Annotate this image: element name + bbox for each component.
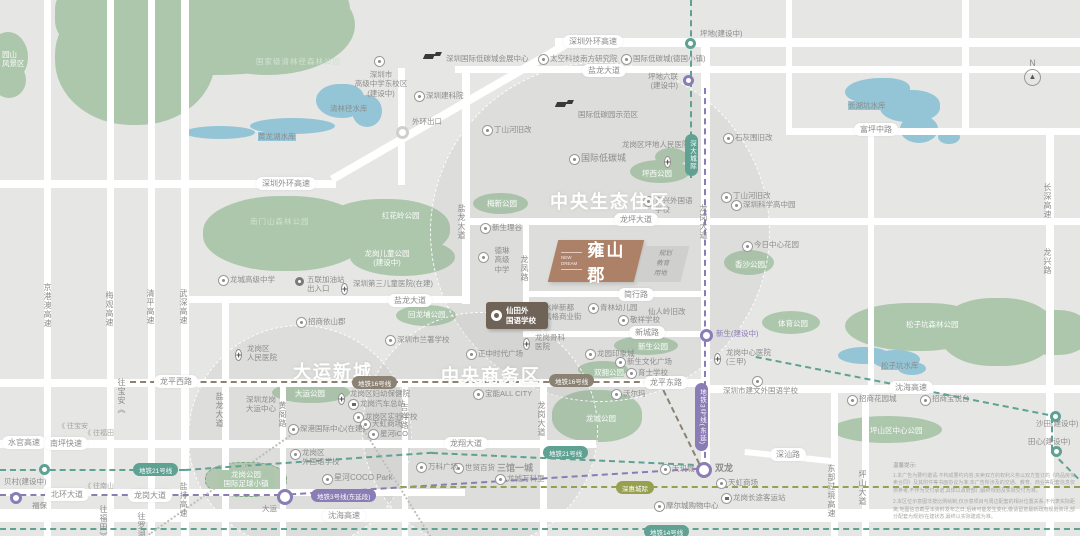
- cross-icon: +: [714, 349, 721, 367]
- map-label: 龙岗儿童公园(建设中): [362, 249, 412, 268]
- map-label: 沃尔玛: [623, 389, 646, 398]
- map-label: 深圳建科院: [426, 91, 464, 100]
- road-label-vertical: 往罗湖》: [136, 512, 147, 536]
- map-label: 龙城高级中学: [230, 275, 275, 284]
- road-label-vertical: 往福田》: [98, 505, 109, 536]
- metro-line-badge: 地铁16号线: [549, 374, 594, 387]
- map-label: 大运公园: [295, 389, 325, 398]
- ring-icon: [538, 54, 549, 65]
- map-label: 天虹商场: [728, 478, 758, 487]
- map-label: 香沙公园: [735, 260, 765, 269]
- map-label: 深圳第三儿童医院(在建): [353, 279, 433, 288]
- cross-icon: +: [235, 345, 242, 363]
- metro-line-badge: 地铁16号线: [352, 376, 397, 389]
- road: [786, 128, 1080, 135]
- ring-icon: [374, 56, 385, 67]
- map-label: 天玑城: [672, 464, 695, 473]
- map-label: 体育公园: [778, 319, 808, 328]
- map-label: 国际低碳城: [581, 153, 626, 164]
- ring-icon: [660, 464, 671, 475]
- map-label: 万科广场: [428, 462, 458, 471]
- map-label: 天虹商场: [372, 419, 402, 428]
- map-label: 德琳高级中学: [491, 246, 513, 274]
- map-label: 星河iCO: [380, 429, 408, 438]
- map-label: 龙岗公园国际足球小镇: [218, 470, 274, 489]
- road-label: 盐龙大道: [388, 294, 432, 307]
- road-label: 龙翔大道: [444, 437, 488, 450]
- road-label-vertical: 东部过境高速: [826, 464, 837, 518]
- disclaimer-title: 温馨提示:: [893, 462, 1075, 471]
- map-label: 龙城公园: [586, 414, 616, 423]
- map-label: 宝能ALL CITY: [485, 389, 532, 398]
- compass-arrow-icon: ▲: [1024, 69, 1041, 86]
- ring-icon: [322, 474, 333, 485]
- map-label: 新生文化广场: [627, 357, 672, 366]
- road-label-vertical: 坪山大道: [857, 470, 868, 506]
- ring-icon: [626, 368, 637, 379]
- ring-icon: [615, 357, 626, 368]
- map-label: 黄龙湖水库: [258, 132, 296, 141]
- map-label: 松子坑森林公园: [906, 320, 959, 329]
- road-label-vertical: 黄阁路: [277, 401, 288, 428]
- road-label: 龙平东路: [644, 376, 688, 389]
- compass-letter: N: [1024, 58, 1041, 68]
- map-label: 深圳科学高中园: [743, 200, 796, 209]
- ring-icon: [618, 315, 629, 326]
- road-label-vertical: 梅观高速: [104, 291, 115, 327]
- road: [148, 0, 155, 536]
- road-label: 沈海高速: [322, 509, 366, 522]
- road: [0, 440, 596, 448]
- bus-icon: [348, 399, 359, 410]
- road: [555, 38, 1080, 47]
- water-shape: [185, 126, 255, 139]
- map-label: 长湖坑水库: [848, 101, 886, 110]
- ring-icon: [742, 241, 753, 252]
- ring-icon: [920, 395, 931, 406]
- map-label: 丁山河旧改: [494, 125, 532, 134]
- ring-icon: [482, 125, 493, 136]
- property-marker-yongshanjun: NEW DREAM 雍山郡: [553, 240, 639, 282]
- map-label: 新生公园: [638, 342, 668, 351]
- map-label: 园山风景区: [2, 50, 25, 69]
- gas-icon: [295, 277, 304, 286]
- map-label: 坪地(建设中): [700, 29, 743, 38]
- map-label: 红花岭公园: [382, 211, 420, 220]
- map-label: 今日中心花园: [754, 240, 799, 249]
- road-label-vertical: 龙岗大道: [536, 401, 547, 437]
- map-label: 松子坑水库: [881, 361, 919, 370]
- map-label: 三馆一城: [497, 463, 533, 474]
- planned-land-line: 教育: [655, 259, 670, 269]
- map-label: 南门山森林公园: [250, 217, 310, 226]
- map-label: 外环出口: [412, 117, 442, 126]
- map-label: 《 往南山: [84, 483, 114, 492]
- road-label-vertical: 清平高速: [145, 289, 156, 325]
- map-label: 招商宝悦台: [932, 394, 970, 403]
- road-label: 富坪中路: [854, 123, 898, 136]
- map-label: 深港国际中心(在建): [300, 424, 365, 433]
- school-flag-line: 国语学校: [506, 316, 536, 326]
- ring-icon: [611, 389, 622, 400]
- ring-icon: [296, 317, 307, 328]
- road: [107, 0, 114, 536]
- road: [455, 66, 1080, 73]
- metro-line-badge: 地铁3号线(东延): [695, 383, 708, 451]
- property-name: 雍山郡: [587, 236, 631, 286]
- school-icon: [491, 310, 502, 321]
- ring-icon: [723, 133, 734, 144]
- planned-land-line: 规划: [658, 249, 673, 259]
- metro-line-badge: 地铁21号线: [543, 446, 588, 459]
- map-label: 龙岗区外国语学校: [302, 448, 348, 467]
- map-label: 坪山区中心公园: [870, 426, 923, 435]
- map-label: 深圳市建文外国语学校: [723, 386, 798, 395]
- planned-education-land-block: 规划 教育 用地: [637, 246, 690, 282]
- road: [460, 218, 1080, 225]
- map-label: 大运: [262, 504, 277, 513]
- ring-icon: [621, 54, 632, 65]
- ring-icon: [654, 501, 665, 512]
- metro-station: [696, 462, 712, 478]
- road-label-vertical: 龙兴路: [1042, 248, 1053, 275]
- metro-station: [396, 126, 409, 139]
- ring-icon: [480, 223, 491, 234]
- map-label: 深圳国际低碳城会展中心: [446, 54, 529, 63]
- ring-icon: [585, 349, 596, 360]
- road-label-vertical: 长深高速: [1042, 183, 1053, 219]
- district-label: 中央生态住区: [550, 188, 670, 214]
- metro-station: [10, 492, 22, 504]
- ring-icon: [478, 252, 489, 263]
- map-label: 太空科技南方研究院: [550, 54, 618, 63]
- bus-icon: [721, 493, 732, 504]
- map-label: 国际低碳城(德国小镇): [633, 54, 706, 63]
- district-label: 中央商务区: [441, 362, 541, 388]
- school-flag-line: 仙田外: [506, 306, 536, 316]
- ring-icon: [290, 449, 301, 460]
- map-label: 龙岗中心医院(三甲): [726, 348, 778, 367]
- ring-icon: [416, 462, 427, 473]
- road-label: 简行路: [618, 288, 654, 301]
- cross-icon: +: [523, 334, 530, 352]
- road-label-vertical: 龙岗大道: [698, 204, 709, 240]
- planned-land-line: 用地: [653, 269, 668, 279]
- road-label-vertical: 盐排高速: [178, 482, 189, 518]
- map-label: 星河COCO Park: [334, 473, 393, 483]
- map-label: 新生(建设中): [716, 329, 759, 338]
- metro-line-badge: 深大城际: [685, 134, 698, 176]
- road-label-vertical: 盐龙大道: [214, 392, 225, 428]
- ring-icon: [569, 154, 580, 165]
- road-label: 新城路: [629, 326, 665, 339]
- road-label-vertical: 往宝安《: [116, 378, 127, 414]
- metro-line-badge: 地铁14号线: [644, 525, 689, 536]
- ring-icon: [473, 389, 484, 400]
- metro-line-badge: 地铁3号线(东延段): [311, 489, 376, 502]
- metro-station: [39, 464, 50, 475]
- map-label: 招商依山郡: [308, 317, 346, 326]
- ring-icon: [495, 474, 506, 485]
- ring-icon: [731, 200, 742, 211]
- map-label: 双龙: [715, 463, 733, 474]
- road-label: 龙岗大道: [128, 489, 172, 502]
- road-label-vertical: 吉祥路: [399, 403, 410, 430]
- road-label: 北环大道: [45, 488, 89, 501]
- ring-icon: [466, 349, 477, 360]
- road-label: 深圳外环高速: [256, 177, 316, 190]
- map-label: 石灰围旧改: [735, 133, 773, 142]
- map-label: 敬祥学校: [630, 315, 660, 324]
- road-label: 水官高速: [2, 436, 46, 449]
- disclaimer-block: 温馨提示: 1.本广告为要约邀请,不构成要约内容,买卖双方的权利义务以双方签订的…: [893, 462, 1075, 525]
- metro-station: [1051, 446, 1062, 457]
- road-label: 龙平西路: [154, 375, 198, 388]
- disclaimer-text: 1.本广告为要约邀请,不构成要约内容,买卖双方的权利义务以双方签订的《商品房买卖…: [893, 473, 1075, 496]
- metro-station: [277, 489, 293, 505]
- map-label: 福保: [32, 501, 47, 510]
- metro-line: [0, 528, 1080, 530]
- disclaimer-text: 2.本区位示意图非按比例绘制,仅示意项目与周边配套的相对位置关系,不代表实际距离…: [893, 499, 1075, 522]
- road: [181, 0, 189, 536]
- map-label: 龙岗长途客运站: [733, 493, 786, 502]
- road-label-vertical: 武深高速: [178, 289, 189, 325]
- road-label: 深汕路: [770, 448, 806, 461]
- cross-icon: +: [338, 389, 345, 407]
- map-label: 深圳市兰著学校: [397, 335, 450, 344]
- road-label: 沈海高速: [889, 381, 933, 394]
- map-label: 国家级清林径森林公园: [256, 57, 341, 66]
- ring-icon: [385, 335, 396, 346]
- road-label-vertical: 龙凤路: [519, 255, 530, 282]
- map-label: 正中时代广场: [478, 349, 523, 358]
- ring-icon: [847, 395, 858, 406]
- map-label: 贝村(建设中): [4, 477, 47, 486]
- metro-line-badge: 地铁21号线: [133, 463, 178, 476]
- map-label: 摩尔城购物中心: [666, 501, 719, 510]
- metro-station: [700, 329, 713, 342]
- location-map: ++++++国家级清林径森林公园园山风景区清林径水库黄龙湖水库长湖坑水库深圳市高…: [0, 0, 1080, 536]
- map-label: 招商花园城: [859, 394, 897, 403]
- map-label: 坪地六联(建设中): [642, 72, 678, 91]
- map-label: 深圳市高级中学东校区(建设中): [346, 70, 416, 98]
- road: [44, 0, 51, 536]
- metro-station: [685, 38, 696, 49]
- road-label: 龙坪大道: [614, 213, 658, 226]
- road-label: 深圳外环高速: [563, 35, 623, 48]
- map-label: 田心(建设中): [1028, 437, 1071, 446]
- compass-north-indicator: N ▲: [1024, 58, 1041, 86]
- metro-station: [683, 75, 694, 86]
- ring-icon: [218, 275, 229, 286]
- map-label: 坪西公园: [642, 169, 672, 178]
- map-label: 回龙埔公园: [408, 310, 446, 319]
- map-label: 丁山河旧改: [733, 191, 771, 200]
- map-label: 青林幼儿园: [600, 303, 638, 312]
- ring-icon: [288, 424, 299, 435]
- metro-line-badge: 深惠城际: [616, 481, 654, 494]
- road: [868, 131, 874, 391]
- road-label: 南坪快速: [44, 437, 88, 450]
- map-label: 双拥公园: [594, 368, 624, 377]
- road-label-vertical: 盐龙大道: [456, 204, 467, 240]
- property-tagline: NEW DREAM: [561, 252, 582, 271]
- metro-line: [658, 381, 700, 465]
- map-label: 龙岗区人民医院: [247, 344, 285, 363]
- map-label: 新生理谷: [492, 223, 522, 232]
- map-label: 国际低碳园示范区: [578, 110, 638, 119]
- map-label: 《 往福田: [84, 430, 114, 439]
- ring-icon: [368, 429, 379, 440]
- map-label: 世贸百货: [465, 463, 495, 472]
- ring-icon: [716, 478, 727, 489]
- map-label: 清林径水库: [330, 104, 368, 113]
- map-label: 五联加油站出入口: [307, 275, 349, 294]
- map-label: 龙岗区坪地人民医院: [622, 140, 690, 149]
- map-label: 龙岗骨科医院: [535, 333, 573, 352]
- xiantian-foreign-language-school-flag: 仙田外 国语学校: [486, 302, 548, 329]
- map-label: 水岸新都风格商业街: [544, 303, 590, 322]
- map-label: 龙城万科里: [507, 474, 545, 483]
- road-label-vertical: 京港澳高速: [42, 283, 53, 328]
- cross-icon: +: [664, 152, 671, 170]
- road-label: 盐龙大道: [582, 64, 626, 77]
- metro-station: [1050, 411, 1061, 422]
- map-label: 龙岗区妇幼保健院: [350, 389, 410, 398]
- map-label: 梅新公园: [487, 199, 517, 208]
